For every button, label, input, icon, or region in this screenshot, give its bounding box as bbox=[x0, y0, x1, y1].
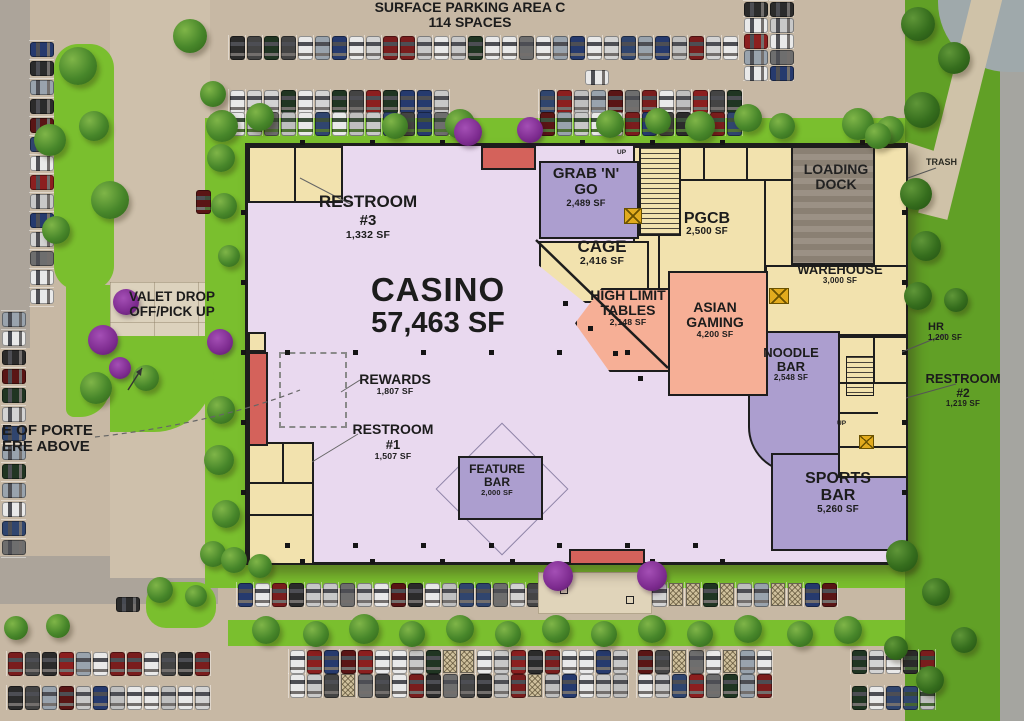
parked-car bbox=[706, 36, 721, 60]
rewards-zone bbox=[279, 352, 347, 428]
column-marker bbox=[563, 301, 568, 306]
parked-car bbox=[805, 583, 820, 607]
parked-car bbox=[638, 36, 653, 60]
hatched-stall bbox=[669, 583, 683, 606]
tree bbox=[185, 585, 207, 607]
tree bbox=[904, 282, 932, 310]
valet-label: VALET DROP OFF/PICK UP bbox=[129, 290, 215, 319]
stair-right bbox=[846, 356, 874, 396]
parked-car bbox=[324, 674, 339, 698]
tree bbox=[900, 178, 932, 210]
tree bbox=[46, 614, 70, 638]
parked-car bbox=[587, 36, 602, 60]
room-backofhouse-bottomleft bbox=[248, 442, 314, 565]
tree bbox=[207, 144, 235, 172]
parked-car bbox=[672, 36, 687, 60]
parked-car bbox=[579, 650, 594, 674]
rewards-label: REWARDS 1,807 SF bbox=[359, 372, 431, 396]
casino-site-plan: SURFACE PARKING AREA C 114 SPACES CASINO… bbox=[0, 0, 1024, 721]
parked-car bbox=[306, 583, 321, 607]
parked-car bbox=[30, 194, 54, 209]
shrub bbox=[454, 118, 482, 146]
tree bbox=[834, 616, 862, 644]
parked-car bbox=[710, 90, 725, 114]
restroom3-label: RESTROOM #3 1,332 SF bbox=[319, 193, 417, 241]
parked-car bbox=[493, 583, 508, 607]
parked-car bbox=[2, 464, 26, 479]
parked-car bbox=[315, 90, 330, 114]
parked-car bbox=[290, 650, 305, 674]
parked-car bbox=[417, 112, 432, 136]
tree bbox=[79, 111, 109, 141]
parked-car bbox=[315, 36, 330, 60]
parked-car bbox=[247, 36, 262, 60]
parked-car bbox=[391, 583, 406, 607]
parked-car bbox=[476, 583, 491, 607]
parked-car bbox=[596, 674, 611, 698]
tree bbox=[916, 666, 944, 694]
parked-car bbox=[324, 650, 339, 674]
parked-car bbox=[579, 674, 594, 698]
grab-n-go-label: GRAB 'N' GO 2,489 SF bbox=[553, 166, 619, 208]
parked-car bbox=[574, 90, 589, 114]
hr-label: HR 1,200 SF bbox=[928, 322, 962, 343]
parked-car bbox=[540, 90, 555, 114]
column-marker bbox=[370, 559, 375, 564]
column-marker bbox=[285, 350, 290, 355]
column-marker bbox=[720, 559, 725, 564]
tree bbox=[207, 396, 235, 424]
parked-car bbox=[744, 34, 768, 49]
tree bbox=[884, 636, 908, 660]
parked-car bbox=[706, 650, 721, 674]
tree bbox=[212, 500, 240, 528]
up-label-1: UP bbox=[617, 149, 626, 156]
parked-car bbox=[332, 112, 347, 136]
parked-car bbox=[770, 66, 794, 81]
parked-car bbox=[307, 650, 322, 674]
parked-car bbox=[392, 674, 407, 698]
parked-car bbox=[349, 112, 364, 136]
noodle-bar-label: NOODLE BAR 2,548 SF bbox=[763, 346, 819, 383]
tree bbox=[542, 615, 570, 643]
parked-car bbox=[770, 50, 794, 65]
parked-car bbox=[460, 674, 475, 698]
parked-car bbox=[689, 36, 704, 60]
hatched-stall bbox=[528, 674, 542, 697]
parked-car bbox=[770, 18, 794, 33]
column-marker bbox=[860, 140, 865, 145]
right-road bbox=[1000, 52, 1024, 721]
parked-car bbox=[676, 90, 691, 114]
parked-car bbox=[375, 674, 390, 698]
parked-car bbox=[383, 90, 398, 114]
tree bbox=[204, 445, 234, 475]
parked-car bbox=[869, 686, 884, 710]
column-marker bbox=[625, 350, 630, 355]
column-marker bbox=[241, 350, 246, 355]
tree bbox=[596, 110, 624, 138]
parked-car bbox=[76, 686, 91, 710]
tree bbox=[769, 113, 795, 139]
parked-car bbox=[116, 597, 140, 612]
column-marker bbox=[693, 543, 698, 548]
parked-car bbox=[417, 36, 432, 60]
parked-car bbox=[230, 90, 245, 114]
column-marker bbox=[557, 543, 562, 548]
parked-car bbox=[744, 18, 768, 33]
shrub bbox=[543, 561, 573, 591]
parked-car bbox=[536, 36, 551, 60]
parked-car bbox=[2, 388, 26, 403]
column-marker bbox=[489, 350, 494, 355]
tree bbox=[252, 616, 280, 644]
parked-car bbox=[770, 34, 794, 49]
parked-car bbox=[557, 112, 572, 136]
parked-car bbox=[434, 90, 449, 114]
column-marker bbox=[241, 210, 246, 215]
cage-label: CAGE 2,416 SF bbox=[577, 238, 626, 268]
parked-car bbox=[477, 674, 492, 698]
hatched-stall bbox=[341, 674, 355, 697]
tree bbox=[938, 42, 970, 74]
parked-car bbox=[740, 674, 755, 698]
column-marker bbox=[353, 350, 358, 355]
asian-gaming-label: ASIAN GAMING 4,200 SF bbox=[686, 300, 744, 340]
parked-car bbox=[553, 36, 568, 60]
parked-car bbox=[8, 686, 23, 710]
column-marker bbox=[241, 420, 246, 425]
parked-car bbox=[869, 650, 884, 674]
parked-car bbox=[272, 583, 287, 607]
parked-car bbox=[613, 650, 628, 674]
column-marker bbox=[300, 140, 305, 145]
parked-car bbox=[127, 686, 142, 710]
hatched-stall bbox=[460, 650, 474, 673]
casino-name: CASINO bbox=[371, 271, 505, 308]
parked-car bbox=[511, 650, 526, 674]
tree bbox=[399, 621, 425, 647]
parked-car bbox=[8, 652, 23, 676]
tree bbox=[734, 104, 762, 132]
parked-car bbox=[511, 674, 526, 698]
parked-car bbox=[770, 2, 794, 17]
parked-car bbox=[307, 674, 322, 698]
tree bbox=[211, 193, 237, 219]
parked-car bbox=[494, 650, 509, 674]
parked-car bbox=[196, 190, 211, 214]
parked-car bbox=[689, 650, 704, 674]
column-marker bbox=[440, 559, 445, 564]
hatched-stall bbox=[723, 650, 737, 673]
tree bbox=[495, 621, 521, 647]
parked-car bbox=[625, 112, 640, 136]
restroom2-label: RESTROOM #2 1,219 SF bbox=[925, 372, 1000, 409]
shrub bbox=[207, 329, 233, 355]
parked-car bbox=[375, 650, 390, 674]
parked-car bbox=[703, 583, 718, 607]
hatched-stall bbox=[720, 583, 734, 606]
column-marker bbox=[902, 350, 907, 355]
parked-car bbox=[400, 90, 415, 114]
parking-title-line1: SURFACE PARKING AREA C bbox=[375, 0, 566, 15]
parked-car bbox=[30, 61, 54, 76]
parked-car bbox=[744, 2, 768, 17]
parked-car bbox=[230, 36, 245, 60]
parked-car bbox=[451, 36, 466, 60]
trash-label: TRASH bbox=[926, 158, 957, 168]
parked-car bbox=[574, 112, 589, 136]
column-marker bbox=[638, 376, 643, 381]
left-road bbox=[0, 0, 30, 348]
tree bbox=[687, 621, 713, 647]
shrub bbox=[109, 357, 131, 379]
parked-car bbox=[281, 36, 296, 60]
parked-car bbox=[161, 652, 176, 676]
parked-car bbox=[409, 674, 424, 698]
parked-car bbox=[30, 156, 54, 171]
parked-car bbox=[255, 583, 270, 607]
column-marker bbox=[421, 543, 426, 548]
tree bbox=[246, 103, 274, 131]
parked-car bbox=[545, 650, 560, 674]
parked-car bbox=[374, 583, 389, 607]
tree bbox=[645, 108, 671, 134]
parked-car bbox=[822, 583, 837, 607]
tree bbox=[303, 621, 329, 647]
column-marker bbox=[902, 420, 907, 425]
tree bbox=[911, 231, 941, 261]
parked-car bbox=[298, 36, 313, 60]
parked-car bbox=[723, 36, 738, 60]
parked-car bbox=[195, 686, 210, 710]
tree bbox=[638, 615, 666, 643]
parked-car bbox=[744, 66, 768, 81]
shrub bbox=[88, 325, 118, 355]
parked-car bbox=[42, 652, 57, 676]
parked-car bbox=[528, 650, 543, 674]
entrance-top bbox=[481, 146, 536, 170]
parked-car bbox=[59, 652, 74, 676]
parked-car bbox=[557, 90, 572, 114]
sports-bar-label: SPORTS BAR 5,260 SF bbox=[805, 470, 871, 515]
tree bbox=[173, 19, 207, 53]
tree bbox=[865, 123, 891, 149]
parked-car bbox=[264, 36, 279, 60]
parking-title-line2: 114 SPACES bbox=[428, 14, 511, 30]
parked-car bbox=[886, 686, 901, 710]
entrance-left bbox=[248, 352, 268, 446]
parked-car bbox=[706, 674, 721, 698]
parked-car bbox=[585, 70, 609, 85]
tree bbox=[80, 372, 112, 404]
tree bbox=[951, 627, 977, 653]
parked-car bbox=[903, 686, 918, 710]
parked-car bbox=[638, 674, 653, 698]
parked-car bbox=[737, 583, 752, 607]
tree bbox=[922, 578, 950, 606]
warehouse-equipment bbox=[769, 288, 789, 304]
tree bbox=[133, 365, 159, 391]
tree bbox=[200, 81, 226, 107]
parked-car bbox=[59, 686, 74, 710]
parked-car bbox=[689, 674, 704, 698]
parked-car bbox=[298, 112, 313, 136]
column-marker bbox=[902, 490, 907, 495]
shrub bbox=[517, 117, 543, 143]
tree bbox=[218, 245, 240, 267]
parked-car bbox=[238, 583, 253, 607]
casino-label: CASINO 57,463 SF bbox=[371, 272, 505, 339]
parked-car bbox=[754, 583, 769, 607]
parked-car bbox=[562, 674, 577, 698]
restroom1-label: RESTROOM #1 1,507 SF bbox=[353, 422, 434, 462]
parked-car bbox=[30, 251, 54, 266]
column-marker bbox=[557, 350, 562, 355]
parked-car bbox=[290, 674, 305, 698]
tree bbox=[349, 614, 379, 644]
tree bbox=[147, 577, 173, 603]
column-marker bbox=[421, 350, 426, 355]
parked-car bbox=[2, 350, 26, 365]
green-verge-bottom bbox=[228, 620, 920, 646]
hatched-stall bbox=[686, 583, 700, 606]
column-marker bbox=[625, 543, 630, 548]
parked-car bbox=[144, 686, 159, 710]
parked-car bbox=[281, 112, 296, 136]
parked-car bbox=[426, 650, 441, 674]
parked-car bbox=[638, 650, 653, 674]
parked-car bbox=[502, 36, 517, 60]
parked-car bbox=[621, 36, 636, 60]
up-label-2: UP bbox=[837, 420, 846, 427]
parked-car bbox=[625, 90, 640, 114]
parked-car bbox=[744, 50, 768, 65]
column-marker bbox=[613, 351, 618, 356]
parked-car bbox=[366, 36, 381, 60]
parked-car bbox=[25, 686, 40, 710]
parked-car bbox=[30, 270, 54, 285]
parked-car bbox=[400, 36, 415, 60]
parked-car bbox=[604, 36, 619, 60]
parked-car bbox=[93, 686, 108, 710]
tree bbox=[685, 111, 715, 141]
pad-marker-2 bbox=[626, 596, 634, 604]
parked-car bbox=[2, 521, 26, 536]
column-marker bbox=[650, 140, 655, 145]
parked-car bbox=[76, 652, 91, 676]
hatched-stall bbox=[771, 583, 785, 606]
tree bbox=[59, 47, 97, 85]
parked-car bbox=[298, 90, 313, 114]
parked-car bbox=[443, 674, 458, 698]
tree bbox=[91, 181, 129, 219]
parked-car bbox=[468, 36, 483, 60]
tree bbox=[248, 554, 272, 578]
parked-car bbox=[341, 650, 356, 674]
tree bbox=[221, 547, 247, 573]
parked-car bbox=[757, 674, 772, 698]
parked-car bbox=[723, 674, 738, 698]
parked-car bbox=[425, 583, 440, 607]
parked-car bbox=[442, 583, 457, 607]
parked-car bbox=[315, 112, 330, 136]
parked-car bbox=[332, 36, 347, 60]
parked-car bbox=[2, 331, 26, 346]
hatched-stall bbox=[788, 583, 802, 606]
parked-car bbox=[332, 90, 347, 114]
tree bbox=[944, 288, 968, 312]
parked-car bbox=[349, 90, 364, 114]
porte-cochere-label: E OF PORTE ERE ABOVE bbox=[2, 423, 93, 455]
parked-car bbox=[596, 650, 611, 674]
tree bbox=[42, 216, 70, 244]
parked-car bbox=[383, 36, 398, 60]
parked-car bbox=[2, 483, 26, 498]
parked-car bbox=[349, 36, 364, 60]
parked-car bbox=[178, 652, 193, 676]
parked-car bbox=[545, 674, 560, 698]
warehouse-label: WAREHOUSE 3,000 SF bbox=[797, 263, 882, 286]
column-marker bbox=[902, 280, 907, 285]
high-limit-label: HIGH LIMIT TABLES 2,148 SF bbox=[590, 288, 665, 328]
parked-car bbox=[2, 312, 26, 327]
parked-car bbox=[417, 90, 432, 114]
parked-car bbox=[178, 686, 193, 710]
tree bbox=[904, 92, 940, 128]
column-marker bbox=[241, 490, 246, 495]
parked-car bbox=[655, 674, 670, 698]
tree bbox=[591, 621, 617, 647]
parked-car bbox=[30, 175, 54, 190]
parked-car bbox=[366, 90, 381, 114]
hatched-stall bbox=[672, 650, 686, 673]
parked-car bbox=[30, 80, 54, 95]
column-marker bbox=[353, 543, 358, 548]
tree bbox=[206, 110, 238, 142]
parked-car bbox=[655, 36, 670, 60]
parked-car bbox=[289, 583, 304, 607]
tree bbox=[34, 124, 66, 156]
parked-car bbox=[2, 540, 26, 555]
parked-car bbox=[30, 289, 54, 304]
parked-car bbox=[358, 650, 373, 674]
parked-car bbox=[477, 650, 492, 674]
parked-car bbox=[485, 36, 500, 60]
parked-car bbox=[409, 650, 424, 674]
parked-car bbox=[510, 583, 525, 607]
parked-car bbox=[392, 650, 407, 674]
parked-car bbox=[340, 583, 355, 607]
parked-car bbox=[740, 650, 755, 674]
parked-car bbox=[323, 583, 338, 607]
parked-car bbox=[852, 686, 867, 710]
parked-car bbox=[127, 652, 142, 676]
parked-car bbox=[161, 686, 176, 710]
casino-sf: 57,463 SF bbox=[371, 307, 505, 339]
tree bbox=[382, 113, 408, 139]
tree bbox=[886, 540, 918, 572]
parked-car bbox=[357, 583, 372, 607]
column-marker bbox=[720, 140, 725, 145]
column-marker bbox=[440, 140, 445, 145]
entrance-bottom bbox=[569, 549, 645, 565]
column-marker bbox=[241, 280, 246, 285]
tree bbox=[787, 621, 813, 647]
parked-car bbox=[426, 674, 441, 698]
right-band-equipment bbox=[859, 435, 874, 449]
parked-car bbox=[2, 502, 26, 517]
